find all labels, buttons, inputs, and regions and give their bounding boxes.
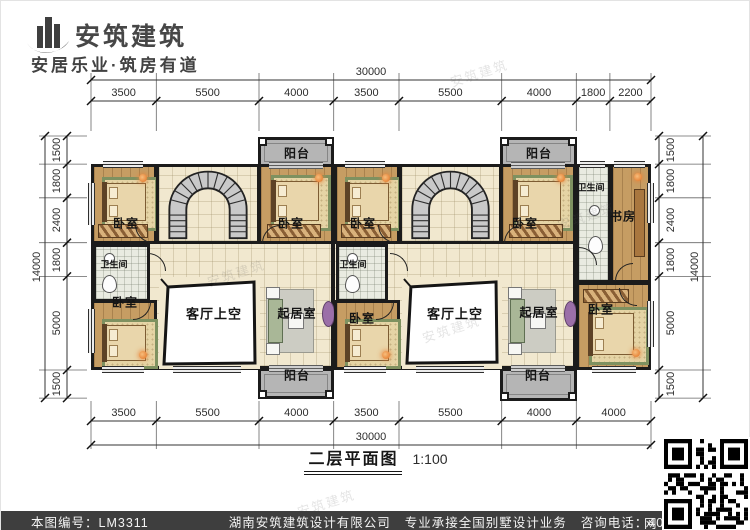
dim-label: 1500: [665, 372, 677, 396]
dim-label: 1500: [51, 372, 63, 396]
balcony-pier: [568, 392, 577, 401]
window: [416, 366, 484, 373]
pillow: [595, 339, 604, 351]
lamp: [139, 351, 147, 359]
dim-label: 5000: [51, 311, 63, 335]
qr-code: [662, 437, 750, 530]
dim-label: 1500: [51, 138, 63, 162]
pillow: [109, 329, 118, 341]
drawing-title: 二层平面图: [304, 445, 402, 475]
window: [173, 366, 241, 373]
room-label-balcony: 阳台: [526, 145, 552, 162]
footer-net-text: 网: [644, 513, 657, 530]
dim-label: 1800: [665, 169, 677, 193]
pillow: [109, 187, 118, 199]
dim-label: 3500: [354, 407, 378, 419]
room-label-bathroom: 卫生间: [100, 258, 127, 271]
dim-label: 30000: [356, 431, 387, 443]
window: [614, 161, 645, 168]
balcony-pier: [500, 137, 509, 146]
balcony-pier: [258, 137, 267, 146]
qr-pattern: [664, 439, 748, 529]
dim-label: 1500: [665, 138, 677, 162]
dim-label: 2200: [618, 87, 642, 99]
french-door: [511, 162, 565, 169]
dim-label: 4000: [527, 87, 551, 99]
footer-bar: 本图编号：LM3311 湖南安筑建筑设计有限公司 专业承接全国别墅设计业务 咨询…: [1, 511, 750, 530]
lamp: [382, 351, 390, 359]
stairwell-right: [399, 164, 502, 244]
balcony-pier: [325, 390, 334, 399]
window: [103, 161, 143, 168]
dim-label: 1800: [51, 169, 63, 193]
lamp: [315, 174, 323, 182]
dim-label: 5500: [195, 87, 219, 99]
room-label-bedroom: 卧室: [349, 310, 375, 327]
service-text: 专业承接全国别墅设计业务: [405, 512, 567, 530]
lamp: [634, 173, 642, 181]
bathroom-b: [336, 244, 388, 302]
toilet: [345, 275, 360, 293]
window: [647, 183, 654, 223]
balcony-pier: [325, 137, 334, 146]
dim-label: 2400: [665, 208, 677, 232]
balcony-pier: [258, 390, 267, 399]
pillow: [520, 185, 529, 197]
room-label-bedroom: 卧室: [588, 301, 614, 318]
company-name: 湖南安筑建筑设计有限公司: [229, 512, 391, 530]
side-table: [266, 343, 280, 355]
balcony-pier: [500, 392, 509, 401]
dim-label: 5000: [665, 311, 677, 335]
lamp: [139, 174, 147, 182]
drawing-scale: 1:100: [412, 451, 447, 467]
dim-label: 1800: [665, 247, 677, 271]
stairwell-left: [156, 164, 260, 244]
pillow: [352, 187, 361, 199]
window: [344, 366, 386, 373]
dim-label: 5500: [195, 407, 219, 419]
room-label-sitting: 起居室: [277, 305, 316, 322]
dim-label: 3500: [111, 87, 135, 99]
dim-label: 4000: [284, 407, 308, 419]
spiral-stair: [402, 167, 499, 241]
footer-company-info: 湖南安筑建筑设计有限公司 专业承接全国别墅设计业务 咨询电话：400-8070-…: [229, 512, 737, 530]
room-label-void: 客厅上空: [186, 304, 242, 323]
sitting-room-right: [502, 275, 574, 367]
room-label-balcony: 阳台: [284, 367, 310, 384]
dim-label: 14000: [689, 252, 701, 283]
dim-label: 1800: [51, 247, 63, 271]
window: [345, 161, 385, 168]
window: [580, 161, 605, 168]
dim-label: 14000: [31, 252, 43, 283]
pillow: [109, 345, 118, 357]
window: [102, 366, 144, 373]
bed: [592, 313, 634, 355]
dim-label: 4000: [284, 87, 308, 99]
room-label-bedroom: 卧室: [112, 294, 138, 311]
lamp: [382, 174, 390, 182]
room-label-bedroom: 卧室: [113, 215, 139, 232]
room-label-bedroom: 卧室: [512, 215, 538, 232]
window: [88, 309, 95, 353]
drawing-sheet: 安筑建筑 安居乐业·筑房有道: [0, 0, 750, 530]
dim-label: 1800: [581, 87, 605, 99]
pillow: [352, 345, 361, 357]
side-table: [508, 343, 522, 355]
room-label-bedroom: 卧室: [278, 215, 304, 232]
toilet: [102, 275, 117, 293]
bedroom-b4: [576, 282, 651, 370]
dim-label: 30000: [356, 66, 387, 78]
dim-label: 2400: [51, 208, 63, 232]
pillow: [278, 185, 287, 197]
window: [88, 183, 95, 225]
window: [592, 366, 636, 373]
dim-label: 5500: [438, 407, 462, 419]
french-door: [269, 162, 323, 169]
dim-label: 4000: [527, 407, 551, 419]
side-table: [266, 287, 280, 299]
pillow: [595, 317, 604, 329]
room-label-sitting: 起居室: [519, 304, 558, 321]
room-label-bathroom: 卫生间: [577, 181, 604, 194]
dim-label: 4000: [601, 407, 625, 419]
spiral-stair: [159, 167, 257, 241]
dim-label: 3500: [111, 407, 135, 419]
window: [647, 301, 654, 347]
dim-label: 3500: [354, 87, 378, 99]
drawing-number: 本图编号：LM3311: [31, 512, 149, 530]
room-label-balcony: 阳台: [284, 145, 310, 162]
pillow: [352, 329, 361, 341]
drawing-title-block: 二层平面图 1:100: [1, 445, 750, 475]
room-label-bedroom: 卧室: [350, 215, 376, 232]
room-label-bathroom: 卫生间: [339, 258, 366, 271]
balcony-pier: [568, 137, 577, 146]
lamp: [632, 349, 640, 357]
lamp: [557, 174, 565, 182]
room-label-balcony: 阳台: [525, 367, 551, 384]
side-table: [508, 287, 522, 299]
